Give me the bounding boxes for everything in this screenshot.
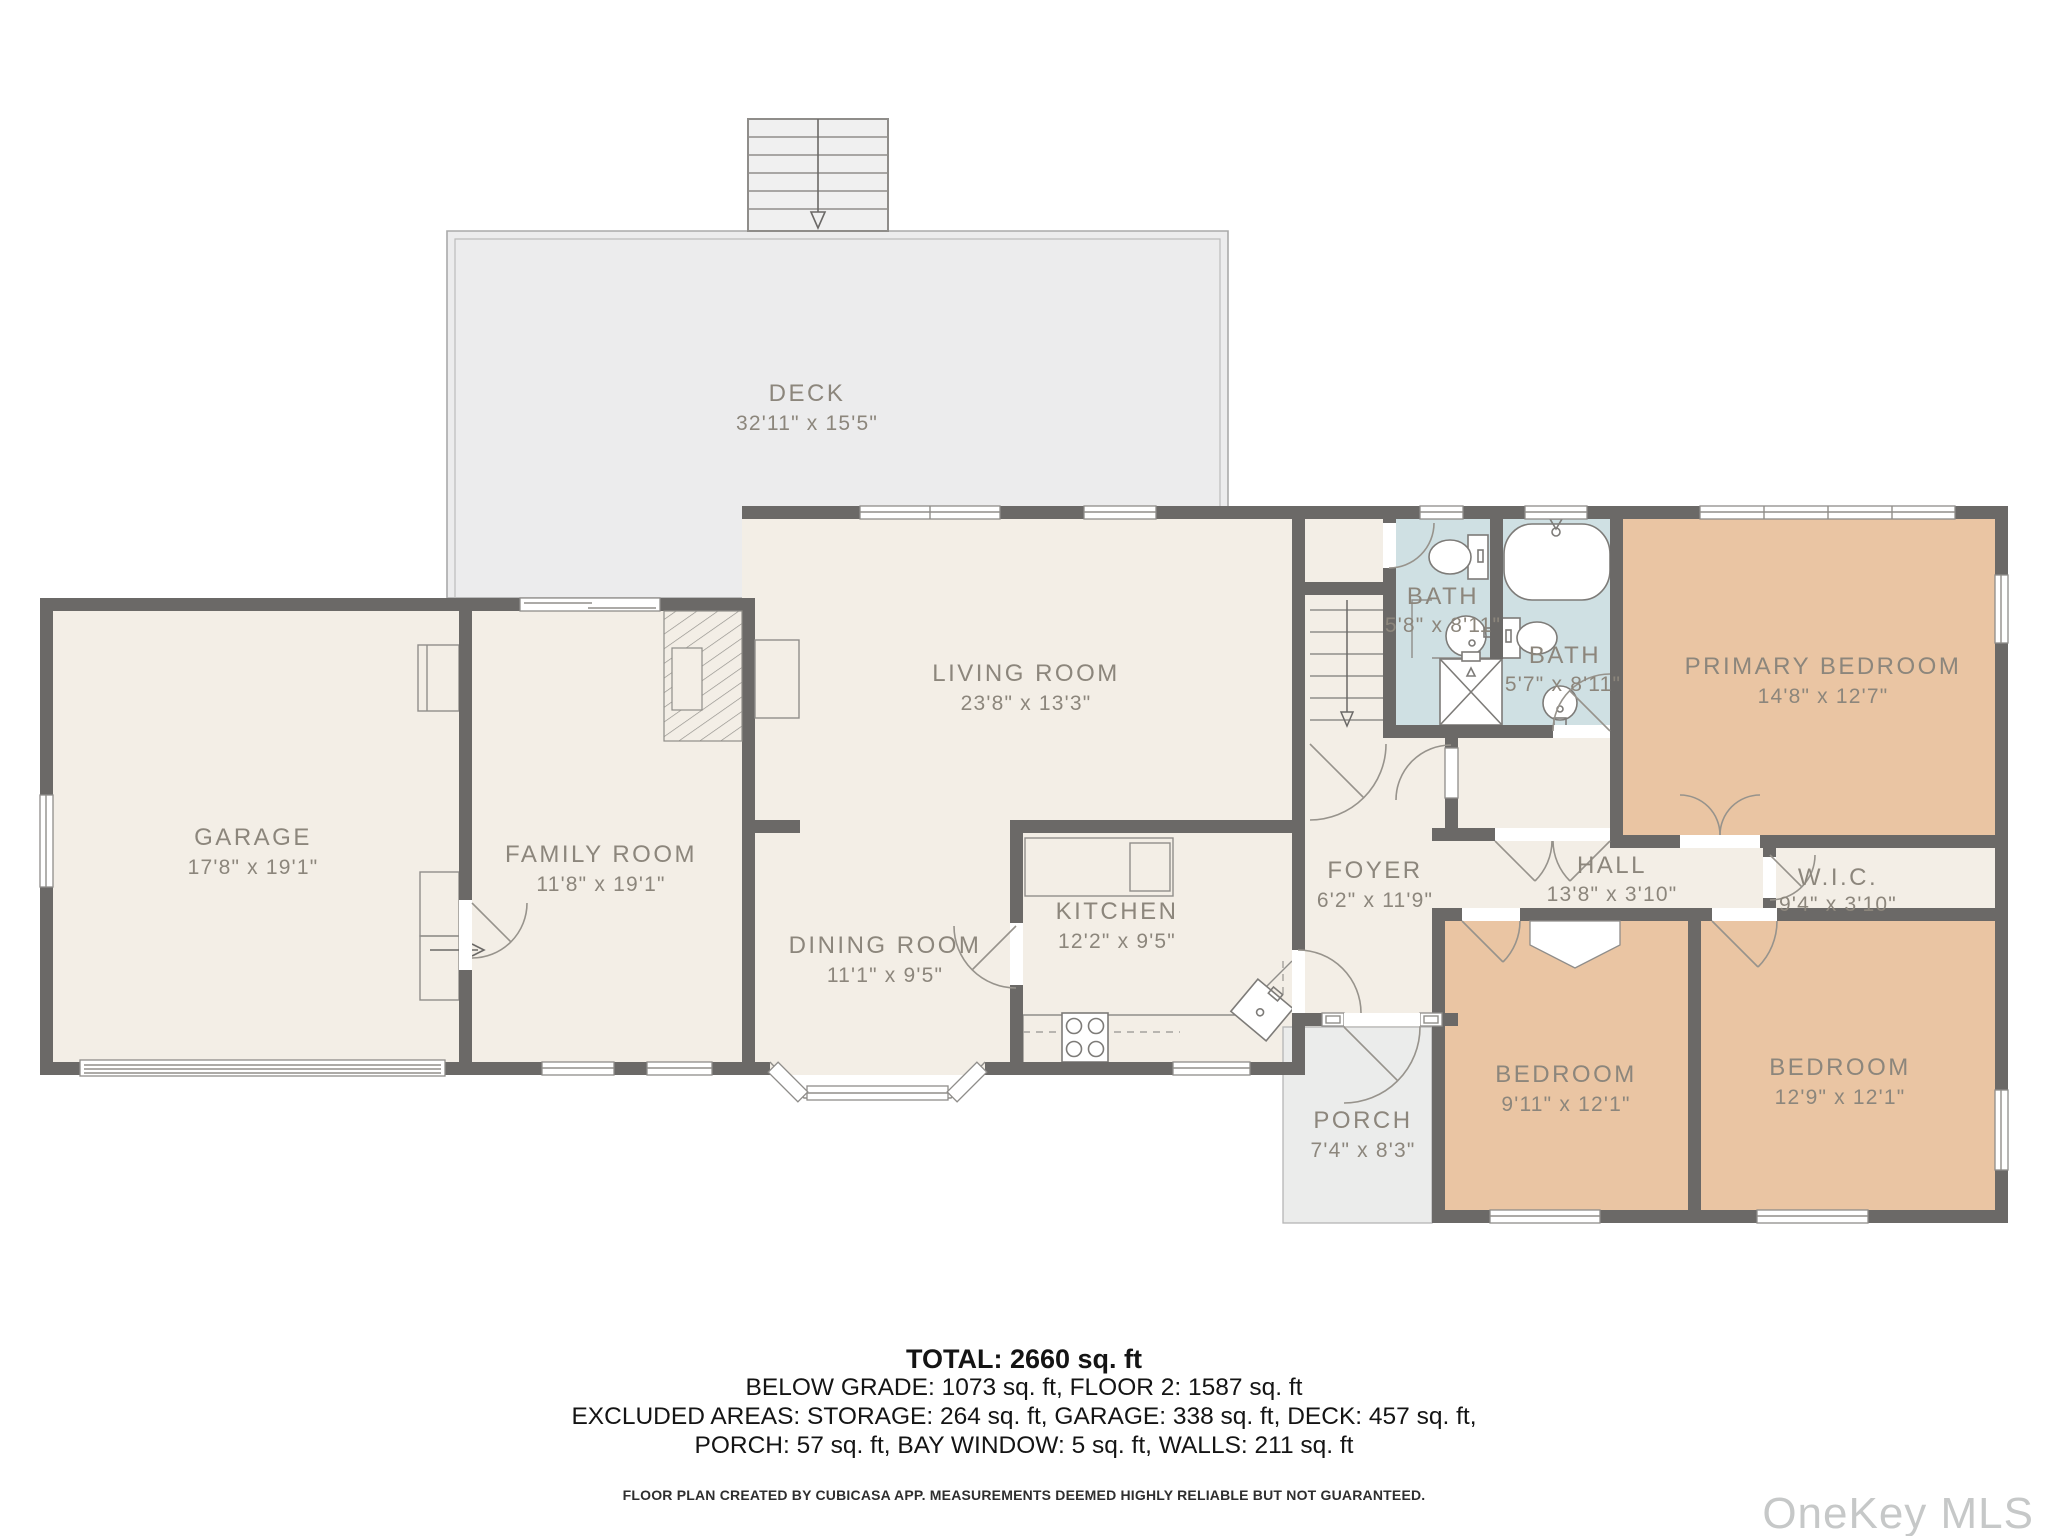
room-label-wic: W.I.C. [1798,864,1878,891]
room-label-foyer: FOYER [1327,857,1422,884]
summary-line-porch: PORCH: 57 sq. ft, BAY WINDOW: 5 sq. ft, … [0,1432,2048,1461]
room-label-family: FAMILY ROOM [505,841,697,868]
room-primary-bedroom [1617,519,2002,841]
garage-door [80,1060,445,1076]
room-dims-living: 23'8" x 13'3" [961,692,1092,715]
window [1420,506,1463,519]
window [1173,1062,1250,1075]
room-label-garage: GARAGE [194,824,312,851]
floor-plan-canvas: DECK 32'11" x 15'5" GARAGE 17'8" x 19'1"… [0,0,2048,1536]
window [1490,1210,1600,1223]
room-dims-hall: 13'8" x 3'10" [1547,883,1678,906]
room-dims-wic: 9'4" x 3'10" [1779,893,1897,916]
bathtub-icon [1504,519,1610,600]
room-label-bedroom-1: BEDROOM [1495,1061,1637,1088]
room-dims-family: 11'8" x 19'1" [536,873,665,896]
front-door-sidelight [1420,1013,1442,1026]
room-dims-kitchen: 12'2" x 9'5" [1058,930,1176,953]
room-dims-bedroom-1: 9'11" x 12'1" [1501,1093,1630,1116]
room-dims-bath-2: 5'7" x 8'11" [1505,673,1621,696]
room-dims-dining: 11'1" x 9'5" [827,964,943,987]
window [860,506,1000,519]
room-label-porch: PORCH [1313,1107,1412,1134]
window [40,795,53,887]
bay-window [768,1062,987,1102]
room-label-kitchen: KITCHEN [1056,898,1179,925]
window [1995,575,2008,643]
deck-stairs [748,119,888,231]
shower-icon [1440,652,1502,725]
room-dims-bedroom-2: 12'9" x 12'1" [1775,1086,1906,1109]
window [542,1062,614,1075]
window [1084,506,1156,519]
front-door-sidelight [1322,1013,1344,1026]
sliding-door [520,598,660,611]
room-label-primary: PRIMARY BEDROOM [1685,653,1962,680]
room-label-dining: DINING ROOM [789,932,982,959]
room-dims-bath-1: 5'8" x 8'11" [1385,614,1501,637]
room-dims-garage: 17'8" x 19'1" [188,856,319,879]
window [647,1062,712,1075]
onekey-mls-watermark: OneKey MLS [1762,1489,2034,1536]
total-area: TOTAL: 2660 sq. ft [0,1344,2048,1374]
room-dims-foyer: 6'2" x 11'9" [1317,889,1433,912]
room-label-hall: HALL [1577,852,1647,879]
disclaimer-text: FLOOR PLAN CREATED BY CUBICASA APP. MEAS… [0,1487,2048,1503]
stove-icon [1062,1013,1108,1062]
window [1757,1210,1868,1223]
floor-plan-page: DECK 32'11" x 15'5" GARAGE 17'8" x 19'1"… [0,0,2048,1536]
room-label-bath-2: BATH [1529,642,1601,669]
room-label-living: LIVING ROOM [932,660,1120,687]
room-dims-deck: 32'11" x 15'5" [736,412,878,435]
room-dims-primary: 14'8" x 12'7" [1758,685,1889,708]
summary-line-excluded: EXCLUDED AREAS: STORAGE: 264 sq. ft, GAR… [0,1403,2048,1432]
room-label-deck: DECK [769,380,846,407]
window [1700,506,1955,519]
room-label-bedroom-2: BEDROOM [1769,1054,1911,1081]
summary-line-below-grade: BELOW GRADE: 1073 sq. ft, FLOOR 2: 1587 … [0,1374,2048,1403]
window [1995,1090,2008,1170]
room-label-bath-1: BATH [1407,583,1479,610]
room-dims-porch: 7'4" x 8'3" [1310,1139,1415,1162]
area-summary: TOTAL: 2660 sq. ft BELOW GRADE: 1073 sq.… [0,1344,2048,1503]
window [1525,506,1587,519]
